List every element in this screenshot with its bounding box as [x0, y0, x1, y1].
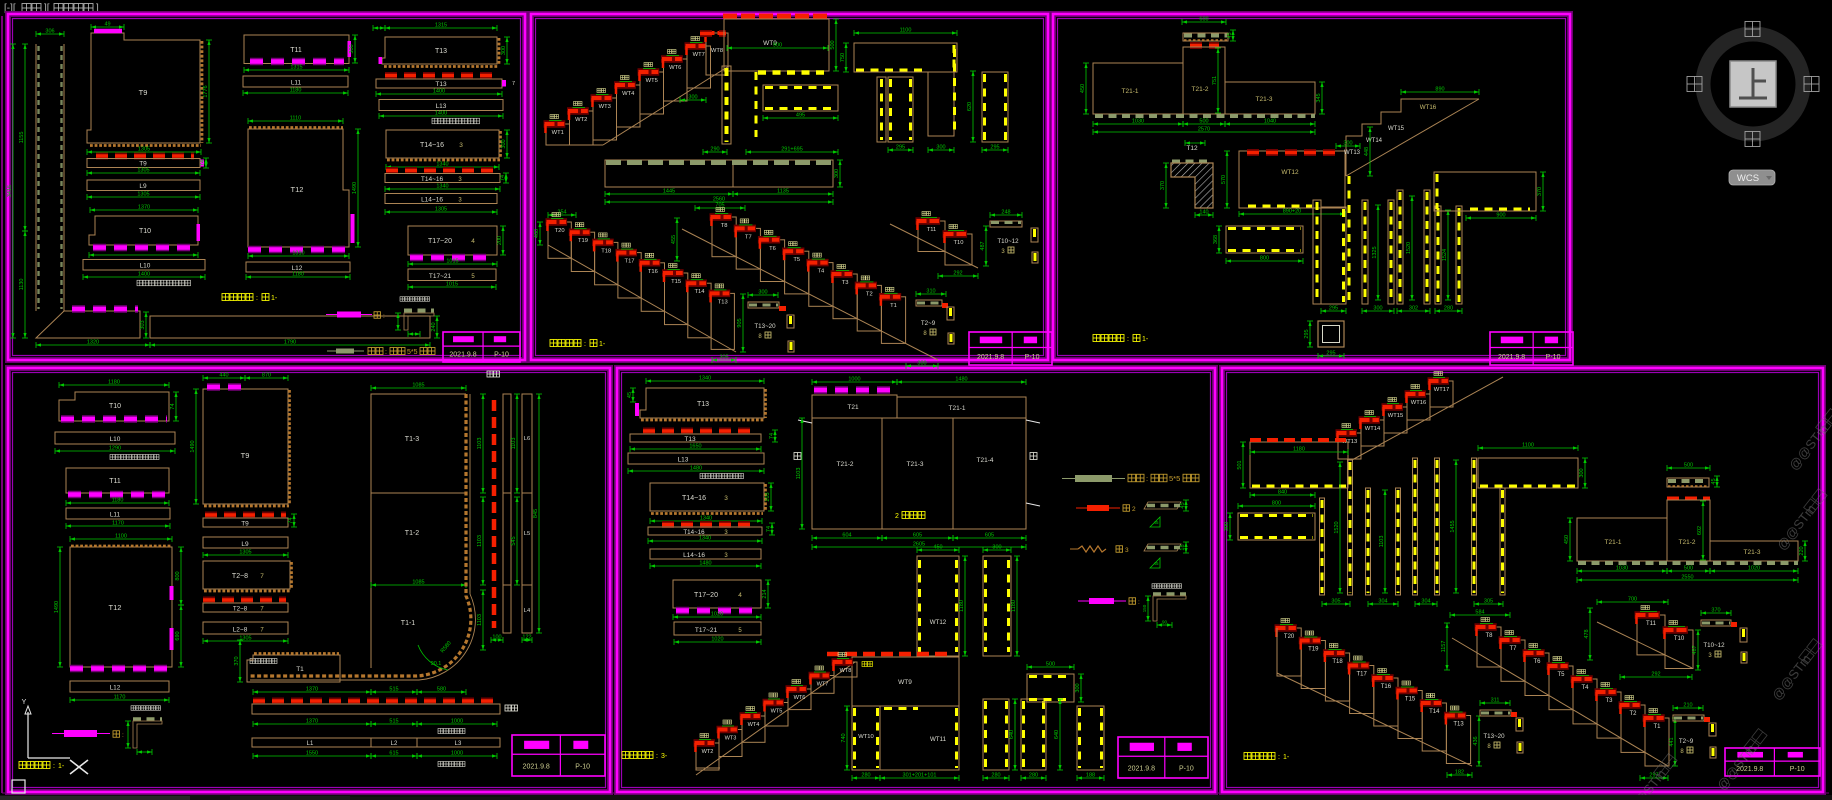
svg-text::: :: [1127, 336, 1129, 343]
svg-text:L11: L11: [110, 512, 121, 519]
svg-text:515: 515: [389, 687, 398, 693]
svg-text:T17~20: T17~20: [428, 238, 452, 245]
svg-text:580: 580: [437, 687, 446, 693]
svg-text:1305: 1305: [137, 192, 149, 198]
svg-text:1790: 1790: [284, 340, 296, 346]
svg-text:T12: T12: [109, 603, 122, 612]
svg-text:305: 305: [1484, 599, 1493, 605]
svg-text:3: 3: [724, 495, 728, 502]
svg-text::: :: [1138, 599, 1140, 606]
svg-text:1370: 1370: [306, 687, 318, 693]
svg-text:302: 302: [1409, 306, 1418, 312]
svg-text:T13~20: T13~20: [1483, 733, 1505, 740]
svg-text:T15: T15: [671, 279, 681, 285]
svg-text:1480: 1480: [690, 466, 702, 472]
svg-text:90.1: 90.1: [431, 661, 442, 667]
svg-text:122: 122: [522, 635, 531, 641]
svg-text:T21-1: T21-1: [949, 405, 966, 412]
svg-text::: :: [1146, 474, 1148, 483]
svg-text:295: 295: [990, 145, 999, 151]
svg-text:495: 495: [796, 113, 805, 119]
svg-text:T10: T10: [139, 228, 151, 235]
svg-text:300: 300: [1075, 683, 1081, 692]
svg-text:840: 840: [1278, 490, 1287, 496]
svg-text:T21-1: T21-1: [1605, 539, 1622, 546]
svg-text:T14: T14: [1429, 709, 1440, 715]
svg-text:1455: 1455: [1450, 520, 1456, 532]
svg-text:P-10: P-10: [1546, 354, 1561, 361]
svg-text:WT6: WT6: [794, 695, 806, 701]
svg-text:2021.9.8: 2021.9.8: [449, 352, 476, 359]
svg-text:248: 248: [1001, 210, 1010, 216]
svg-text:1103: 1103: [796, 468, 802, 480]
svg-text:T20: T20: [555, 228, 565, 234]
svg-text:448: 448: [1364, 147, 1370, 156]
svg-text:182: 182: [1455, 770, 1464, 776]
svg-text:3: 3: [1125, 547, 1129, 554]
svg-text:L14~16: L14~16: [683, 552, 705, 559]
svg-text:1490: 1490: [190, 440, 196, 452]
svg-text:300: 300: [758, 290, 767, 296]
svg-text:1305: 1305: [239, 550, 251, 556]
svg-text:WT8: WT8: [840, 668, 852, 674]
svg-text:305: 305: [1331, 599, 1340, 605]
svg-text:L6: L6: [524, 436, 530, 442]
svg-text:T3: T3: [1605, 698, 1613, 704]
svg-text:T1-3: T1-3: [405, 436, 420, 443]
svg-text:74: 74: [769, 433, 775, 439]
svg-text:300: 300: [992, 545, 1001, 551]
svg-text:500: 500: [1684, 566, 1693, 572]
svg-text:300: 300: [917, 361, 926, 367]
svg-text:T21: T21: [847, 404, 859, 411]
svg-text:L4: L4: [524, 608, 531, 614]
svg-text:1020: 1020: [711, 612, 723, 618]
svg-text:WT7: WT7: [817, 682, 829, 688]
svg-text:4: 4: [738, 592, 742, 599]
svg-text:WT14: WT14: [1365, 426, 1381, 432]
svg-text:1110: 1110: [290, 116, 301, 122]
svg-text:290: 290: [710, 147, 719, 153]
svg-text:280: 280: [861, 773, 870, 779]
svg-text:1524: 1524: [1442, 249, 1448, 261]
svg-text:370: 370: [234, 656, 240, 665]
svg-text:870: 870: [262, 373, 271, 379]
svg-text:292: 292: [953, 271, 962, 277]
svg-text:1-: 1-: [599, 341, 606, 348]
svg-text:291+695: 291+695: [781, 147, 803, 153]
svg-text:1030: 1030: [1616, 566, 1628, 572]
svg-text:440: 440: [219, 373, 228, 379]
svg-text:436: 436: [1473, 736, 1479, 745]
svg-text:1180: 1180: [112, 498, 124, 504]
svg-text:1180: 1180: [292, 272, 304, 278]
svg-text:1305: 1305: [138, 147, 150, 153]
svg-text:1315: 1315: [435, 23, 447, 29]
svg-text:304: 304: [1378, 599, 1387, 605]
svg-text:3415: 3415: [7, 185, 13, 197]
svg-text:WT4: WT4: [748, 722, 760, 728]
svg-text:T13: T13: [718, 299, 728, 305]
svg-text:4: 4: [471, 238, 475, 245]
svg-text:300: 300: [1579, 468, 1585, 477]
svg-text:1370: 1370: [138, 205, 150, 211]
svg-text:T12: T12: [291, 185, 304, 194]
svg-text:1180: 1180: [108, 380, 120, 386]
svg-text:L9: L9: [241, 541, 249, 548]
svg-text:1340: 1340: [700, 516, 712, 522]
svg-text:45: 45: [1153, 561, 1159, 566]
svg-text:2550: 2550: [1681, 575, 1693, 581]
svg-text:310: 310: [926, 289, 935, 295]
svg-text:T8: T8: [1485, 633, 1493, 639]
svg-text:1000: 1000: [848, 377, 860, 383]
svg-text:2: 2: [1132, 506, 1136, 513]
svg-text:620: 620: [967, 102, 973, 111]
svg-text:1180: 1180: [1293, 447, 1305, 453]
svg-text::: :: [656, 753, 658, 760]
svg-text:T15: T15: [1405, 697, 1416, 703]
svg-text:L10: L10: [110, 436, 121, 443]
svg-text:T10~12: T10~12: [997, 238, 1019, 245]
svg-text:1170: 1170: [114, 695, 126, 701]
svg-text:T10~12: T10~12: [1703, 642, 1725, 649]
svg-text:890: 890: [1435, 87, 1444, 93]
svg-text:1030: 1030: [1132, 119, 1144, 125]
svg-text:1-: 1-: [1283, 754, 1290, 761]
svg-text:140: 140: [1199, 210, 1208, 216]
svg-text:T4: T4: [1581, 685, 1589, 691]
svg-text:T7: T7: [1509, 646, 1517, 652]
svg-text:1000: 1000: [451, 719, 463, 725]
svg-text:74: 74: [288, 517, 294, 523]
svg-text:WCS: WCS: [1737, 173, 1759, 184]
svg-text:1-: 1-: [58, 763, 65, 770]
svg-text:1100: 1100: [115, 534, 127, 540]
svg-text:584: 584: [1475, 610, 1484, 616]
svg-text:WT16: WT16: [1411, 400, 1426, 406]
svg-text:T13: T13: [1453, 722, 1464, 728]
svg-text:T21-2: T21-2: [1192, 86, 1209, 93]
svg-text:T10: T10: [109, 403, 121, 410]
svg-text:90: 90: [1162, 620, 1168, 625]
svg-text:370: 370: [1160, 181, 1166, 190]
svg-text:P-10: P-10: [1179, 766, 1194, 773]
svg-text:L13: L13: [436, 103, 447, 110]
svg-text:604: 604: [842, 533, 851, 539]
svg-text:2021.9.8: 2021.9.8: [1128, 766, 1155, 773]
svg-text:1305: 1305: [239, 636, 251, 642]
svg-text:905: 905: [737, 318, 743, 327]
svg-text:214: 214: [762, 589, 768, 598]
svg-text:P-10: P-10: [575, 764, 590, 771]
svg-text:1340: 1340: [699, 376, 711, 382]
svg-text:300: 300: [1373, 306, 1382, 312]
svg-text:304: 304: [1421, 599, 1430, 605]
svg-text:L2: L2: [391, 741, 398, 747]
svg-text:45: 45: [1227, 32, 1233, 38]
svg-text:1370: 1370: [306, 719, 318, 725]
svg-text:300: 300: [501, 139, 507, 148]
svg-text:615: 615: [389, 751, 398, 757]
svg-text:501: 501: [1237, 460, 1243, 469]
svg-text::: :: [256, 295, 258, 302]
svg-text:T21-3: T21-3: [1256, 96, 1273, 103]
svg-text:280: 280: [1444, 306, 1453, 312]
svg-text:T11: T11: [1646, 621, 1657, 627]
svg-text:T9: T9: [139, 88, 148, 97]
svg-text:1040: 1040: [1264, 119, 1276, 125]
svg-text:300: 300: [501, 46, 507, 55]
svg-text:200: 200: [497, 236, 503, 245]
svg-text:L13: L13: [678, 457, 689, 464]
svg-text:478: 478: [1584, 629, 1590, 638]
svg-text:1400: 1400: [435, 111, 447, 117]
svg-text:450: 450: [1564, 535, 1570, 544]
svg-text:1340: 1340: [436, 184, 448, 190]
svg-text:T2: T2: [1629, 711, 1637, 717]
svg-text:WT3: WT3: [725, 736, 737, 742]
svg-text::: :: [1278, 754, 1280, 761]
svg-text:T1: T1: [890, 303, 897, 309]
svg-text:P-10: P-10: [1025, 354, 1040, 361]
svg-text:1157: 1157: [1441, 641, 1447, 653]
svg-text:1445: 1445: [663, 189, 675, 195]
svg-text:800: 800: [175, 571, 181, 580]
svg-text:303: 303: [140, 320, 146, 329]
svg-text:T2: T2: [866, 291, 873, 297]
svg-text:T21-3: T21-3: [1744, 549, 1761, 556]
svg-text:L14~16: L14~16: [421, 197, 443, 204]
svg-text:WT2: WT2: [702, 749, 714, 755]
svg-text:1015: 1015: [446, 282, 458, 288]
svg-text:1135: 1135: [777, 189, 789, 195]
svg-text:T17: T17: [625, 259, 635, 265]
svg-text:750: 750: [840, 53, 846, 62]
svg-text:7: 7: [512, 81, 515, 87]
svg-text:45: 45: [1711, 478, 1717, 484]
svg-text:1480: 1480: [955, 377, 967, 383]
svg-text:300: 300: [688, 95, 697, 101]
svg-text:1180: 1180: [290, 88, 302, 94]
svg-text:WT11: WT11: [930, 736, 947, 743]
svg-text:T1-2: T1-2: [405, 530, 420, 537]
svg-text:WT9: WT9: [898, 679, 912, 686]
svg-text:L11: L11: [291, 80, 302, 87]
svg-text:300: 300: [349, 44, 355, 53]
svg-text:7: 7: [260, 573, 264, 580]
svg-text:292: 292: [1651, 672, 1660, 678]
svg-text:300: 300: [834, 169, 840, 178]
svg-text:370: 370: [1711, 608, 1720, 614]
svg-text:1103: 1103: [477, 438, 483, 450]
svg-text:T8: T8: [721, 223, 728, 229]
svg-text:1340: 1340: [436, 162, 448, 168]
svg-text:T21-2: T21-2: [1679, 539, 1696, 546]
svg-text:T3: T3: [842, 280, 849, 286]
svg-text:L10: L10: [140, 263, 151, 270]
svg-text:890+20: 890+20: [1283, 209, 1302, 215]
svg-text:T5: T5: [1557, 672, 1565, 678]
svg-text:2570: 2570: [1198, 127, 1210, 133]
svg-text:T19: T19: [578, 238, 588, 244]
svg-text:295: 295: [1329, 306, 1338, 312]
svg-text:T4: T4: [818, 269, 826, 275]
svg-text:295: 295: [1326, 351, 1335, 357]
svg-text:1325: 1325: [1372, 246, 1378, 258]
svg-text:1020: 1020: [711, 637, 723, 643]
svg-text:487: 487: [980, 241, 986, 250]
svg-text:T21-1: T21-1: [1122, 88, 1139, 95]
svg-text:515: 515: [389, 719, 398, 725]
svg-text:1085: 1085: [412, 580, 424, 586]
svg-text:T21-4: T21-4: [977, 457, 994, 464]
svg-text:1020: 1020: [1748, 566, 1760, 572]
svg-text:1170: 1170: [112, 521, 124, 527]
svg-text:T16: T16: [1381, 684, 1392, 690]
svg-text:1776: 1776: [203, 85, 209, 97]
svg-text:T17: T17: [1357, 672, 1368, 678]
svg-text:210: 210: [1683, 703, 1692, 709]
svg-text:740: 740: [841, 733, 847, 742]
svg-text:305: 305: [719, 355, 728, 361]
svg-text:2021.9.8: 2021.9.8: [977, 354, 1004, 361]
svg-text:600: 600: [1199, 17, 1208, 23]
svg-text:T10: T10: [954, 240, 964, 246]
svg-text:T6: T6: [1533, 659, 1541, 665]
svg-text:500: 500: [1199, 119, 1208, 125]
svg-text:1340: 1340: [699, 536, 711, 542]
svg-text:T20: T20: [1284, 634, 1295, 640]
svg-text:370: 370: [1537, 187, 1543, 196]
svg-text:1103: 1103: [1379, 536, 1385, 548]
svg-text:T6: T6: [769, 246, 776, 252]
svg-text:T9: T9: [241, 521, 249, 528]
svg-text:L1: L1: [307, 741, 314, 747]
svg-text:5*5: 5*5: [1169, 474, 1180, 483]
svg-text:L12: L12: [110, 685, 121, 692]
svg-text:T5: T5: [793, 257, 800, 263]
svg-text:WT6: WT6: [669, 65, 681, 71]
svg-text:T2~9: T2~9: [1679, 738, 1694, 745]
svg-text:T16: T16: [648, 269, 658, 275]
svg-text:605: 605: [913, 533, 922, 539]
svg-text:74: 74: [200, 160, 206, 166]
svg-text:2: 2: [895, 513, 899, 520]
svg-text:5*5: 5*5: [407, 349, 418, 356]
svg-text:602: 602: [1697, 526, 1703, 535]
svg-text:T18: T18: [601, 248, 611, 254]
svg-text:1320: 1320: [87, 340, 99, 346]
svg-text:240: 240: [431, 322, 437, 331]
svg-text:100: 100: [492, 635, 501, 641]
svg-text:1290: 1290: [109, 446, 121, 452]
svg-text:T9: T9: [241, 451, 250, 460]
svg-text:300: 300: [1224, 522, 1230, 531]
svg-text:T12: T12: [1186, 145, 1198, 152]
svg-text:1000: 1000: [451, 751, 463, 757]
svg-text:1100: 1100: [1522, 443, 1534, 449]
svg-text:WT16: WT16: [1420, 104, 1437, 111]
svg-text:T17~21: T17~21: [429, 273, 452, 280]
svg-text:L3: L3: [455, 741, 462, 747]
svg-text:L2~8: L2~8: [233, 627, 248, 634]
svg-text:450: 450: [1080, 84, 1086, 93]
svg-text:1180: 1180: [1011, 600, 1017, 612]
svg-text:900: 900: [1496, 213, 1505, 219]
svg-text:1650: 1650: [689, 444, 701, 450]
svg-text:WT12: WT12: [930, 619, 947, 626]
svg-text:T2~8: T2~8: [233, 606, 248, 613]
svg-text:49: 49: [104, 22, 110, 28]
svg-text:WT15: WT15: [1388, 126, 1405, 132]
svg-text:74: 74: [500, 175, 506, 181]
svg-text:605: 605: [985, 533, 994, 539]
svg-text:WT4: WT4: [622, 91, 635, 97]
svg-text:T1: T1: [296, 666, 304, 673]
svg-text:345: 345: [1316, 93, 1322, 102]
svg-text:T2~8: T2~8: [232, 573, 248, 580]
svg-text:T14~16: T14~16: [420, 142, 444, 149]
svg-text:1490: 1490: [54, 601, 60, 613]
svg-text:2021.9.8: 2021.9.8: [1498, 354, 1525, 361]
svg-text:T10: T10: [1674, 636, 1685, 642]
svg-text:74: 74: [766, 526, 772, 532]
svg-text:1520: 1520: [1406, 242, 1412, 254]
svg-text:500: 500: [1684, 463, 1693, 469]
svg-text:1-: 1-: [1142, 336, 1149, 343]
svg-text:1305: 1305: [137, 168, 149, 174]
svg-text:900: 900: [773, 43, 782, 49]
svg-text::: :: [122, 732, 124, 739]
svg-text:1305: 1305: [435, 207, 447, 213]
svg-text:45: 45: [1153, 520, 1159, 525]
svg-text:751: 751: [1212, 76, 1218, 85]
svg-text:WT1: WT1: [552, 130, 564, 136]
svg-text:800: 800: [1260, 256, 1269, 262]
svg-text::: :: [584, 341, 586, 348]
svg-text:WT10: WT10: [858, 734, 873, 740]
svg-text:P-10: P-10: [1790, 766, 1805, 773]
svg-text:3-: 3-: [661, 753, 668, 760]
svg-text:WT13: WT13: [1344, 150, 1361, 156]
svg-text:WT14: WT14: [1366, 138, 1383, 144]
svg-text:845: 845: [533, 509, 539, 518]
svg-text:1015: 1015: [446, 259, 458, 265]
svg-text:WT5: WT5: [771, 709, 783, 715]
svg-text:T1-1: T1-1: [401, 620, 416, 627]
svg-text:WT5: WT5: [646, 78, 658, 84]
svg-text:280: 280: [1029, 773, 1038, 779]
svg-text:T7: T7: [745, 234, 752, 240]
svg-text:1100: 1100: [900, 28, 912, 34]
svg-text:368: 368: [1213, 235, 1219, 244]
svg-text:1103: 1103: [477, 535, 483, 547]
svg-text:545: 545: [511, 536, 517, 545]
svg-text:L9: L9: [139, 183, 147, 190]
svg-text:T11: T11: [109, 478, 121, 485]
svg-text:301+201+101: 301+201+101: [903, 773, 937, 779]
svg-text:1103: 1103: [477, 614, 483, 626]
svg-text:T11: T11: [290, 47, 302, 54]
svg-text:1130: 1130: [19, 279, 25, 291]
svg-text:74: 74: [170, 403, 176, 409]
svg-text:WT15: WT15: [1388, 413, 1403, 419]
svg-text:45: 45: [1180, 502, 1186, 508]
svg-text:T13: T13: [684, 436, 696, 443]
svg-text:P-10: P-10: [494, 352, 509, 359]
svg-text:300: 300: [936, 145, 945, 151]
